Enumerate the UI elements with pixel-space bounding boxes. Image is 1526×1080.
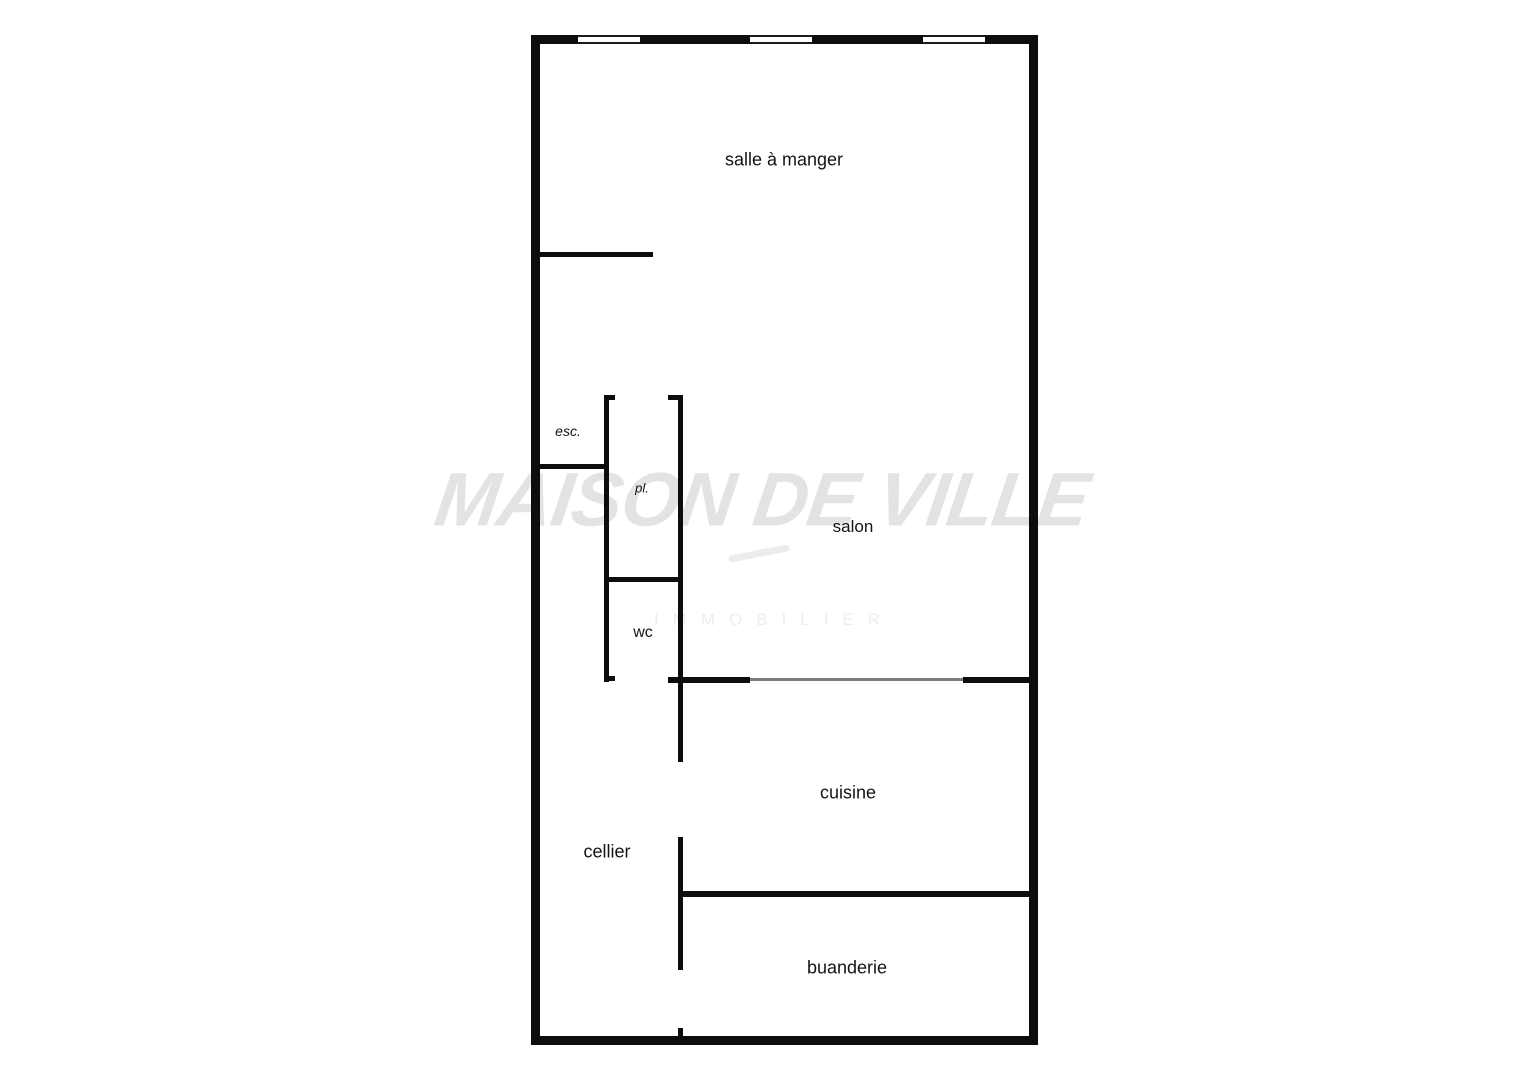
- wall-dining-partition: [540, 252, 653, 257]
- room-label-cellier: cellier: [583, 842, 630, 863]
- wall-salon-cuisine-right: [963, 677, 1030, 683]
- window-icon-1: [578, 35, 640, 44]
- floor-plan-page: MAISON DE VILLE IMMOBILIER salle à mange…: [0, 0, 1526, 1080]
- wall-stairs-bottom: [540, 464, 605, 469]
- wall-closet-left: [604, 395, 609, 682]
- wall-closet-left-tick-bottom: [604, 676, 615, 681]
- room-label-buanderie: buanderie: [807, 958, 887, 979]
- wall-vertical-middle: [678, 837, 683, 970]
- opening-line-salon-cuisine: [750, 678, 963, 681]
- wall-closet-left-tick-top: [604, 395, 615, 400]
- room-label-salle-a-manger: salle à manger: [725, 150, 843, 171]
- room-label-cuisine: cuisine: [820, 783, 876, 804]
- room-label-esc: esc.: [555, 423, 581, 439]
- window-icon-3: [923, 35, 985, 44]
- room-label-pl: pl.: [635, 481, 649, 496]
- wall-closet-wc-divider: [606, 577, 682, 582]
- wall-cuisine-buanderie: [678, 891, 1030, 897]
- wall-salon-cuisine-left: [668, 677, 750, 683]
- wall-vertical-bottom-stub: [678, 1028, 683, 1040]
- room-label-wc: wc: [633, 624, 653, 642]
- window-icon-2: [750, 35, 812, 44]
- room-label-salon: salon: [833, 517, 874, 537]
